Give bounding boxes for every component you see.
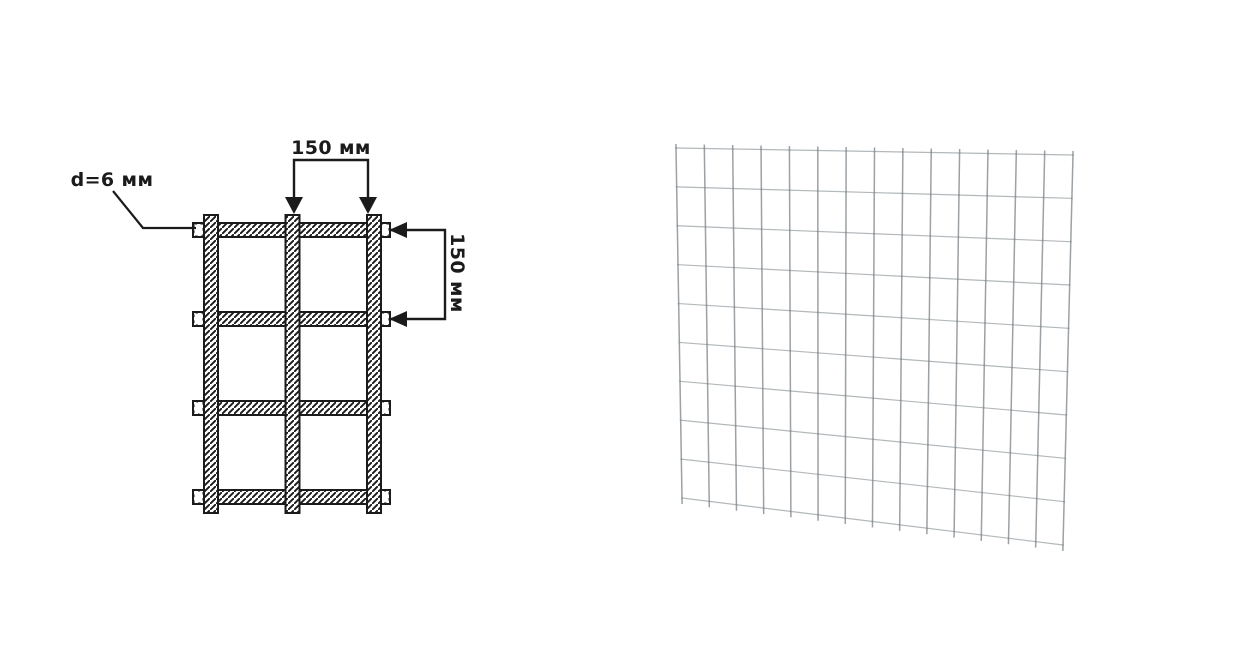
mesh-3d-render bbox=[675, 144, 1074, 551]
dimension-label-wire-diameter: d=6 мм bbox=[71, 169, 154, 191]
dimension-label-horizontal-spacing: 150 мм bbox=[291, 137, 371, 159]
mesh-schematic-drawing bbox=[193, 215, 390, 513]
dimension-label-vertical-spacing: 150 мм bbox=[446, 233, 468, 313]
wire-mesh-product-illustration: 150 мм d=6 мм 150 мм bbox=[0, 0, 1240, 660]
dimension-lines bbox=[113, 160, 445, 327]
illustration-canvas bbox=[0, 0, 1240, 660]
